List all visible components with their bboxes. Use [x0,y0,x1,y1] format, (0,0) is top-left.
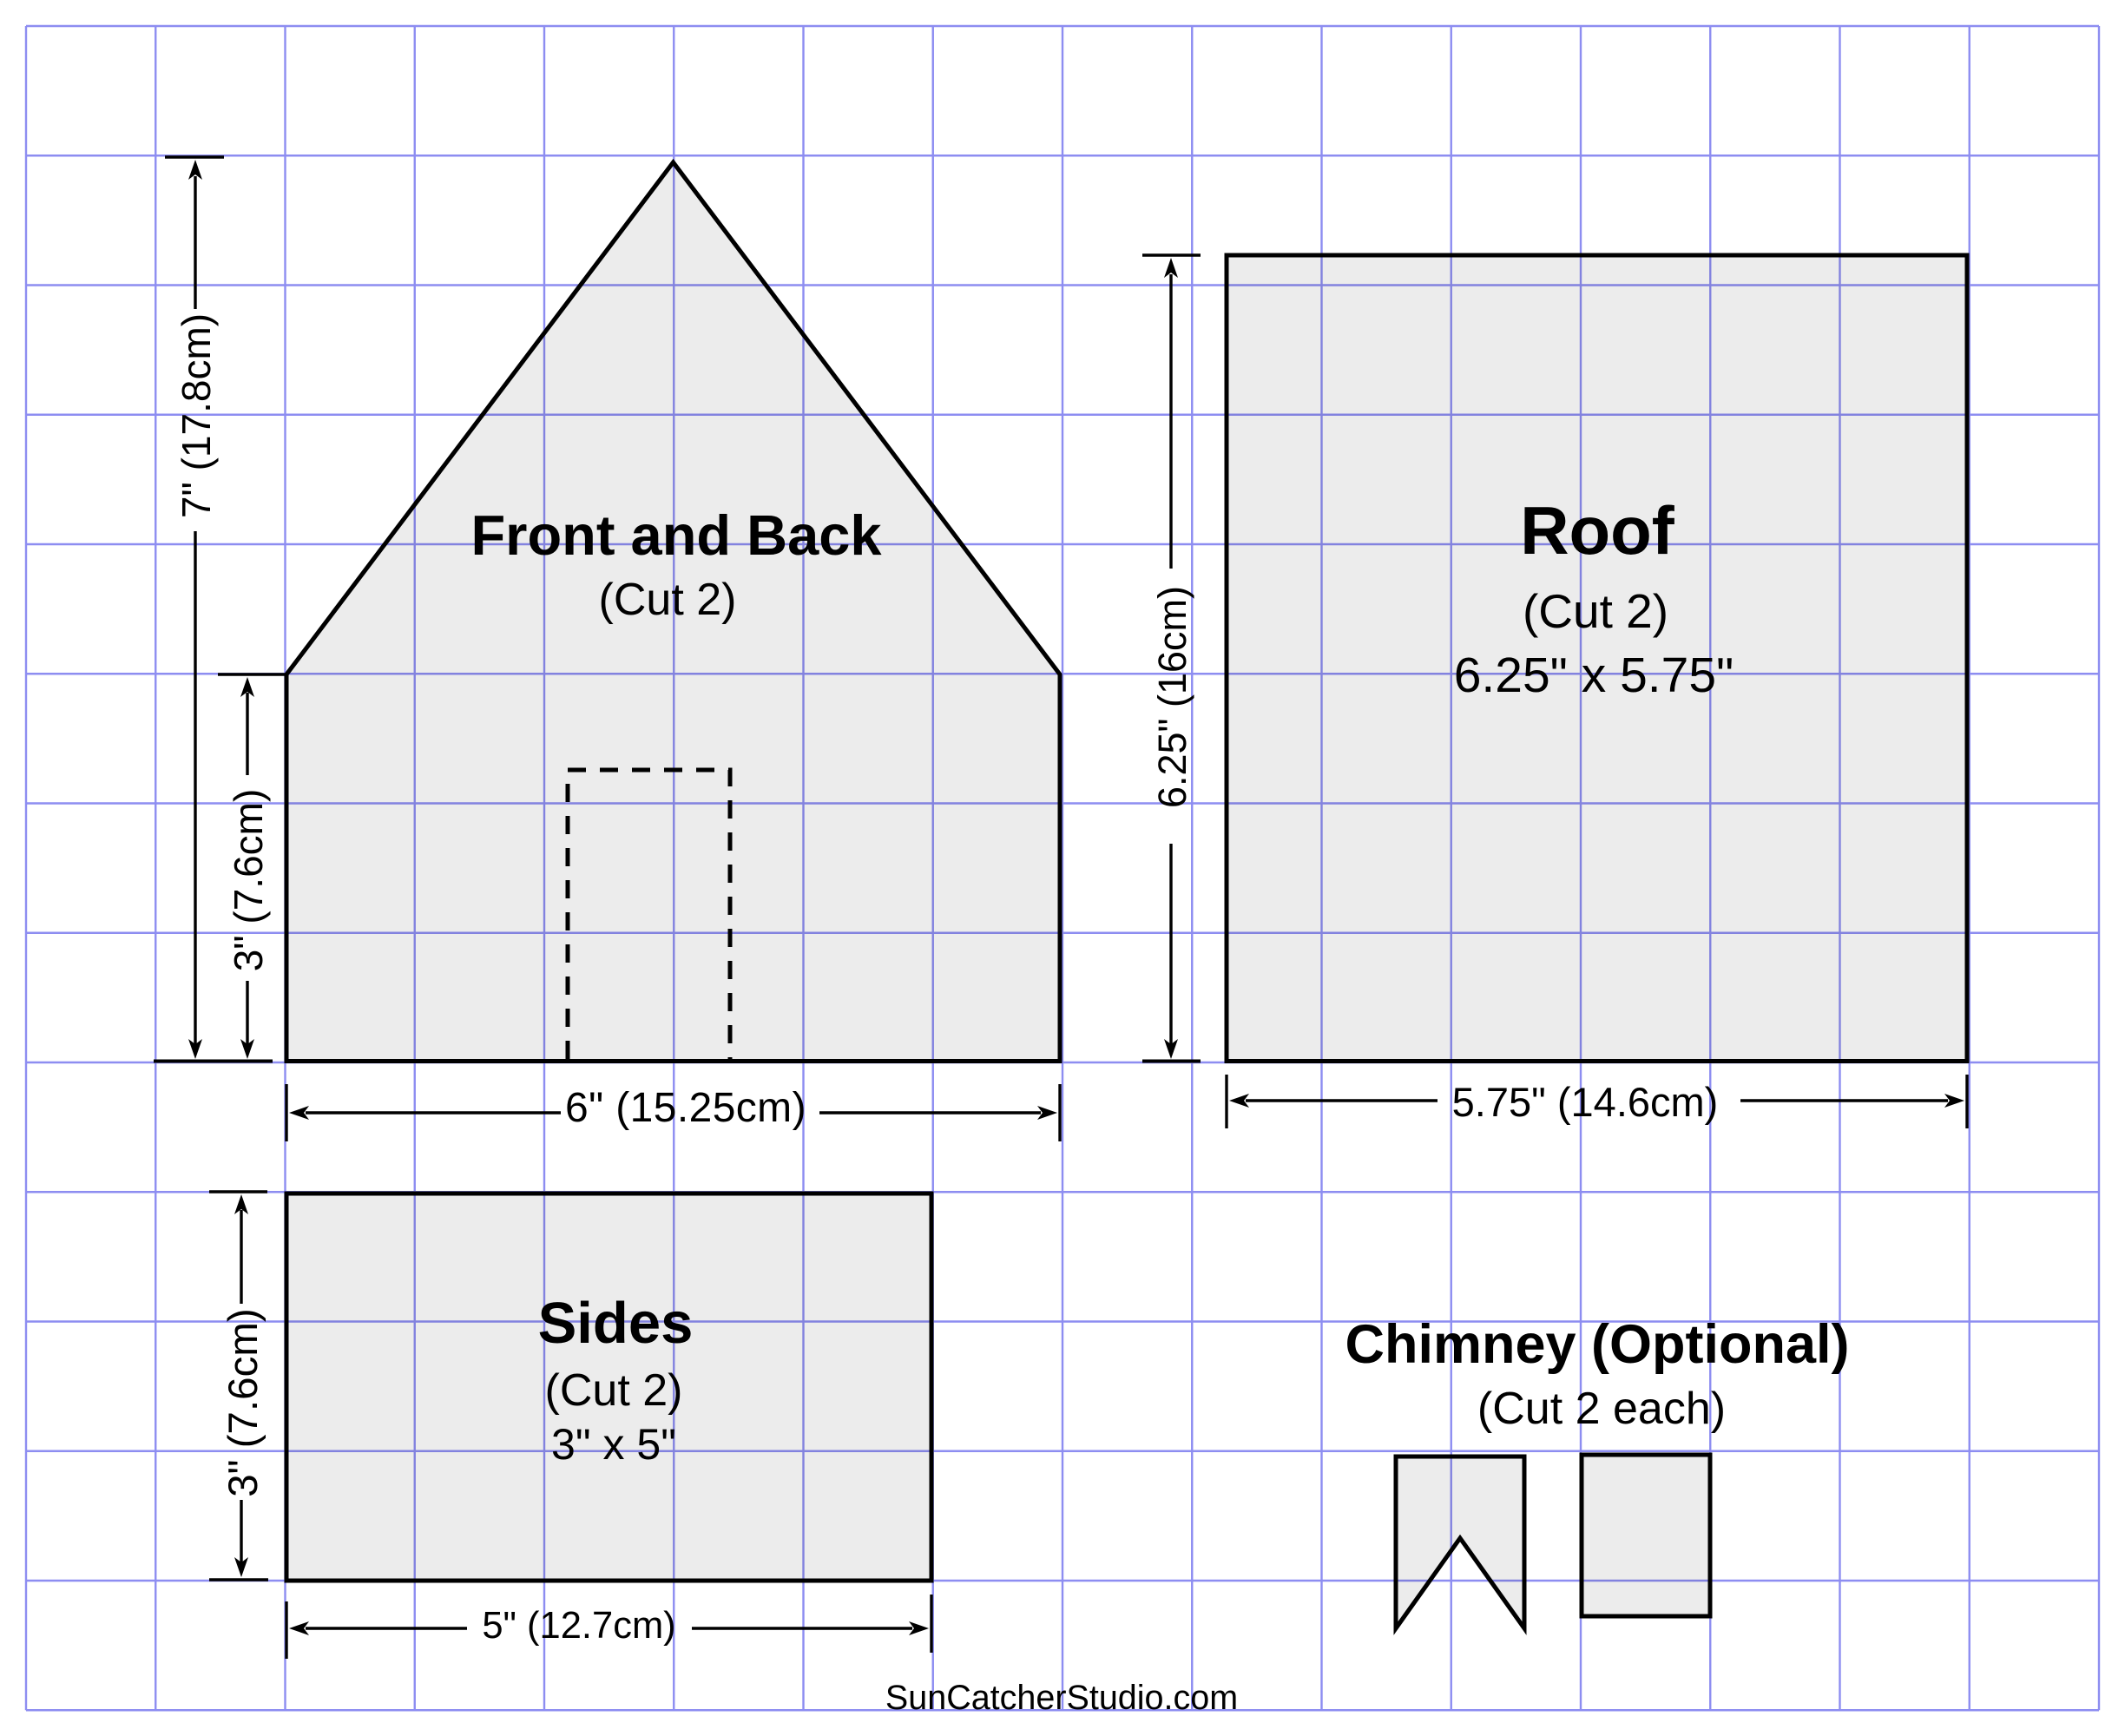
svg-text:(Cut 2): (Cut 2) [599,575,737,625]
svg-text:3" (7.6cm): 3" (7.6cm) [226,789,271,972]
svg-text:7" (17.8cm): 7" (17.8cm) [174,313,219,518]
svg-text:Roof: Roof [1520,492,1675,569]
svg-text:3" (7.6cm): 3" (7.6cm) [220,1308,266,1496]
svg-text:SunCatcherStudio.com: SunCatcherStudio.com [885,1679,1238,1717]
svg-text:6.25" x 5.75": 6.25" x 5.75" [1454,648,1734,703]
svg-text:5" (12.7cm): 5" (12.7cm) [482,1605,675,1647]
svg-text:(Cut 2): (Cut 2) [545,1365,683,1416]
svg-text:(Cut 2 each): (Cut 2 each) [1477,1384,1726,1434]
svg-text:(Cut 2): (Cut 2) [1523,584,1668,638]
svg-text:Front and Back: Front and Back [470,503,882,567]
svg-text:Chimney (Optional): Chimney (Optional) [1345,1314,1850,1375]
svg-text:6" (15.25cm): 6" (15.25cm) [565,1085,806,1131]
svg-text:3" x 5": 3" x 5" [551,1420,676,1469]
svg-text:Sides: Sides [538,1291,694,1356]
svg-text:5.75" (14.6cm): 5.75" (14.6cm) [1452,1079,1719,1125]
svg-text:6.25" (16cm): 6.25" (16cm) [1150,586,1194,808]
